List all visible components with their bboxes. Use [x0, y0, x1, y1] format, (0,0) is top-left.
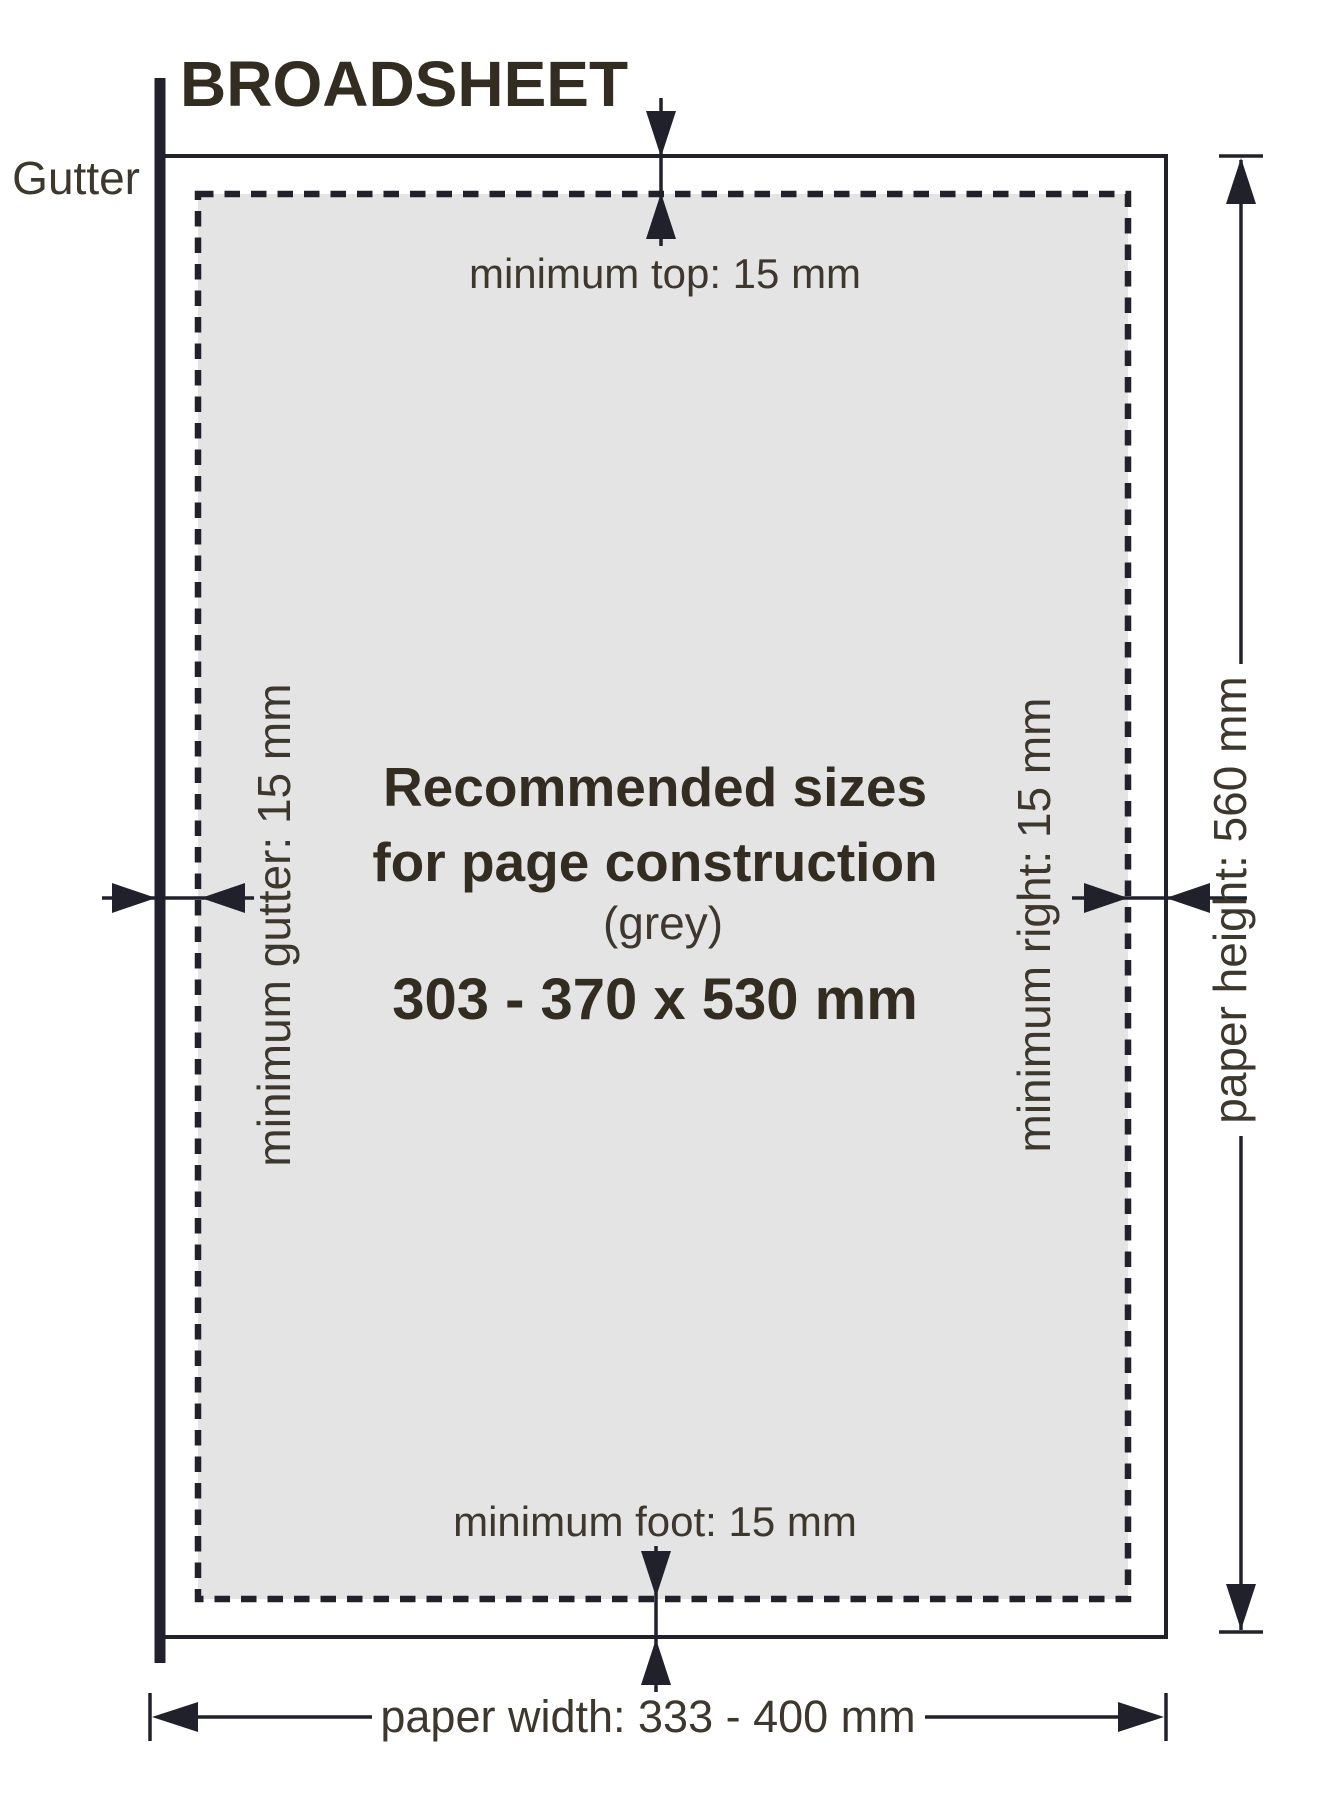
height-arrow-down-icon	[1226, 1584, 1256, 1630]
gutter-label: Gutter	[12, 152, 140, 204]
paper-height-label: paper height: 560 mm	[1204, 676, 1256, 1124]
broadsheet-paper-size-diagram: BROADSHEET Gutter minimum top: 15 mm min…	[0, 0, 1334, 1795]
gutter-arrow-right-icon	[112, 883, 156, 913]
foot-arrow-up-icon	[641, 1639, 671, 1685]
width-arrow-right-icon	[1118, 1702, 1164, 1732]
paper-width-dimension: paper width: 333 - 400 mm	[150, 1691, 1166, 1742]
page-title: BROADSHEET	[180, 48, 628, 120]
center-line-1: Recommended sizes	[383, 756, 927, 818]
top-arrow-down-icon	[646, 111, 676, 157]
width-arrow-left-icon	[152, 1702, 198, 1732]
paper-height-dimension: paper height: 560 mm	[1204, 156, 1263, 1632]
min-foot-label: minimum foot: 15 mm	[453, 1498, 857, 1545]
center-line-2: for page construction	[372, 831, 937, 893]
min-right-label: minimum right: 15 mm	[1008, 698, 1060, 1153]
paper-width-label: paper width: 333 - 400 mm	[380, 1691, 915, 1742]
min-top-label: minimum top: 15 mm	[469, 250, 861, 297]
center-line-3: (grey)	[603, 897, 723, 949]
center-line-4: 303 - 370 x 530 mm	[392, 967, 918, 1032]
min-gutter-label: minimum gutter: 15 mm	[248, 683, 300, 1166]
